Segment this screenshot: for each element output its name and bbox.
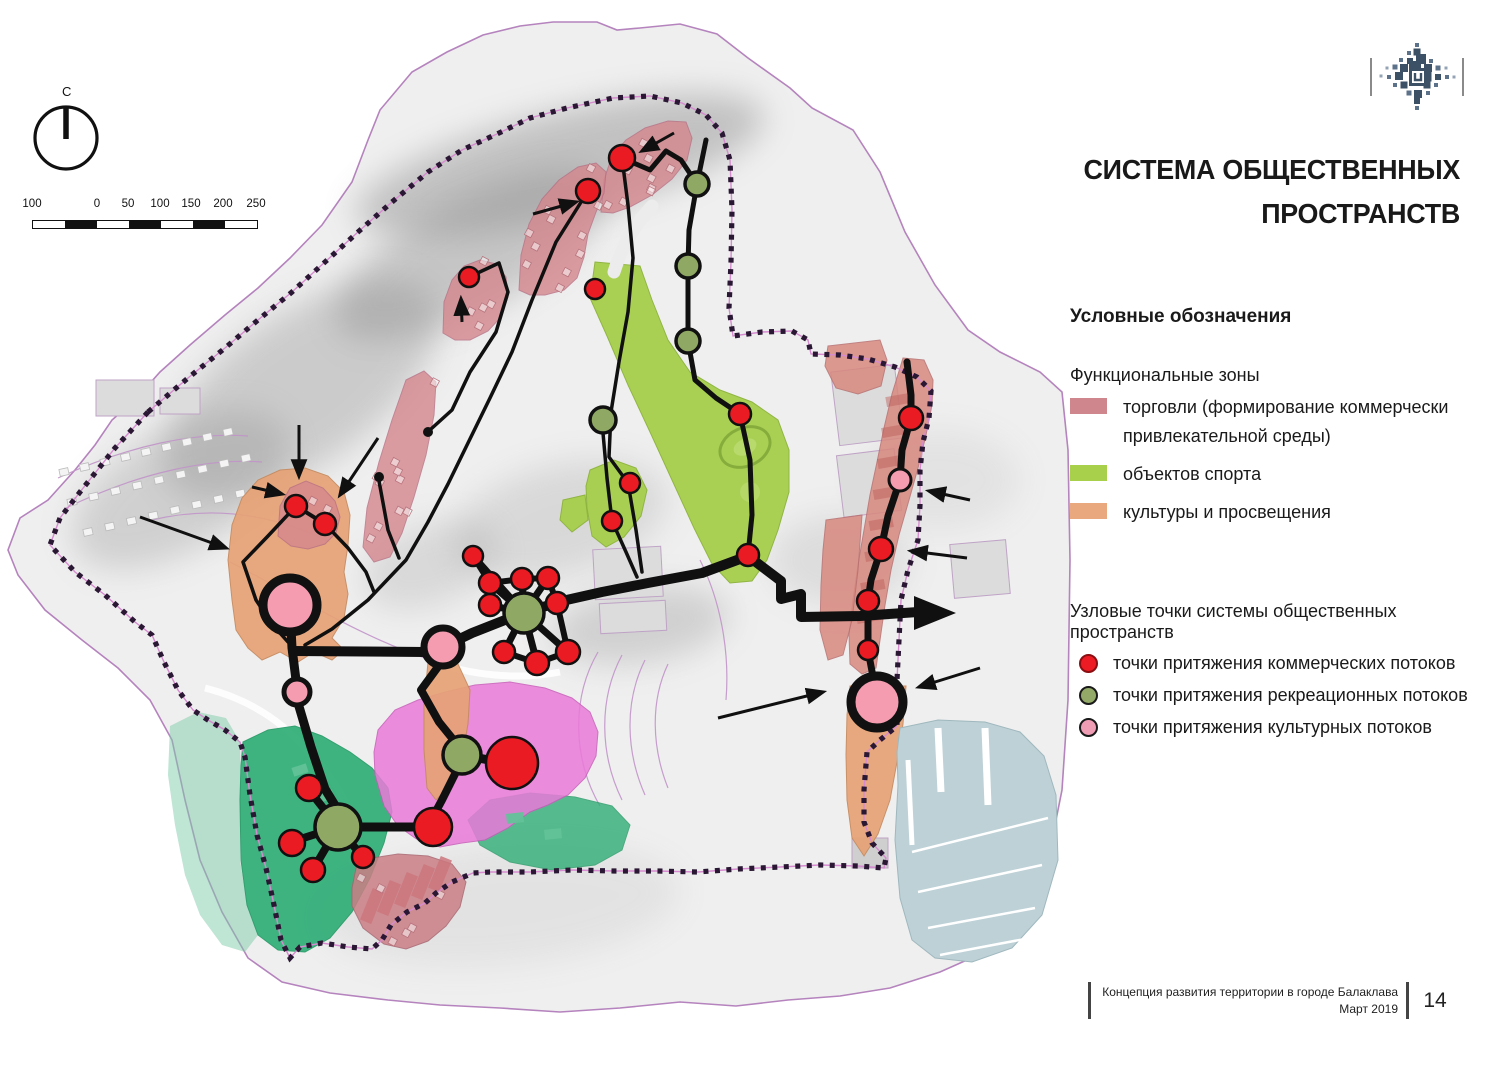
page-title-line1: СИСТЕМА ОБЩЕСТВЕННЫХ bbox=[865, 148, 1460, 192]
legend: Условные обозначения Функциональные зоны… bbox=[1070, 306, 1470, 749]
cultural-node-icon bbox=[1079, 718, 1098, 737]
page-number: 14 bbox=[1409, 989, 1461, 1013]
zone-label-trade: торговли (формирование коммерчески привл… bbox=[1123, 393, 1453, 451]
footer-text: Концепция развития территории в городе Б… bbox=[1096, 984, 1398, 1017]
zone-label-sport: объектов спорта bbox=[1123, 460, 1453, 489]
recreational-node-icon bbox=[1079, 686, 1098, 705]
logo bbox=[1356, 34, 1480, 120]
legend-zone-item: объектов спорта bbox=[1070, 460, 1470, 489]
zone-swatch-trade bbox=[1070, 398, 1107, 414]
scale-label: 150 bbox=[181, 198, 200, 210]
legend-node-item: точки притяжения рекреационных потоков bbox=[1070, 685, 1470, 706]
scale-bar: 100050100150200250 bbox=[20, 198, 290, 242]
page-title: СИСТЕМА ОБЩЕСТВЕННЫХ ПРОСТРАНСТВ bbox=[865, 148, 1460, 236]
legend-node-item: точки притяжения культурных потоков bbox=[1070, 717, 1470, 738]
scale-label: 100 bbox=[150, 198, 169, 210]
scale-label: 200 bbox=[213, 198, 232, 210]
compass-north-label: С bbox=[62, 84, 71, 99]
node-label-commercial: точки притяжения коммерческих потоков bbox=[1113, 653, 1455, 674]
legend-zone-item: культуры и просвещения bbox=[1070, 498, 1470, 527]
zone-label-culture: культуры и просвещения bbox=[1123, 498, 1453, 527]
scale-label: 100 bbox=[22, 198, 41, 210]
footer-line1: Концепция развития территории в городе Б… bbox=[1096, 984, 1398, 1001]
page-title-line2: ПРОСТРАНСТВ bbox=[865, 192, 1460, 236]
node-label-recreational: точки притяжения рекреационных потоков bbox=[1113, 685, 1468, 706]
legend-zones-heading: Функциональные зоны bbox=[1070, 365, 1470, 386]
commercial-node-icon bbox=[1079, 654, 1098, 673]
node-label-cultural: точки притяжения культурных потоков bbox=[1113, 717, 1432, 738]
scale-label: 250 bbox=[246, 198, 265, 210]
zone-swatch-culture bbox=[1070, 503, 1107, 519]
legend-node-item: точки притяжения коммерческих потоков bbox=[1070, 653, 1470, 674]
legend-nodes-heading: Узловые точки системы общественных прост… bbox=[1070, 601, 1470, 643]
legend-heading: Условные обозначения bbox=[1070, 306, 1470, 328]
footer-line2: Март 2019 bbox=[1096, 1001, 1398, 1018]
scale-label: 50 bbox=[122, 198, 135, 210]
scale-bar-segments bbox=[32, 220, 258, 229]
zone-swatch-sport bbox=[1070, 465, 1107, 481]
north-compass: С bbox=[26, 78, 106, 178]
footer-divider-left bbox=[1088, 982, 1091, 1019]
footer: Концепция развития территории в городе Б… bbox=[1088, 982, 1461, 1019]
scale-label: 0 bbox=[94, 198, 100, 210]
legend-zone-item: торговли (формирование коммерчески привл… bbox=[1070, 393, 1470, 451]
